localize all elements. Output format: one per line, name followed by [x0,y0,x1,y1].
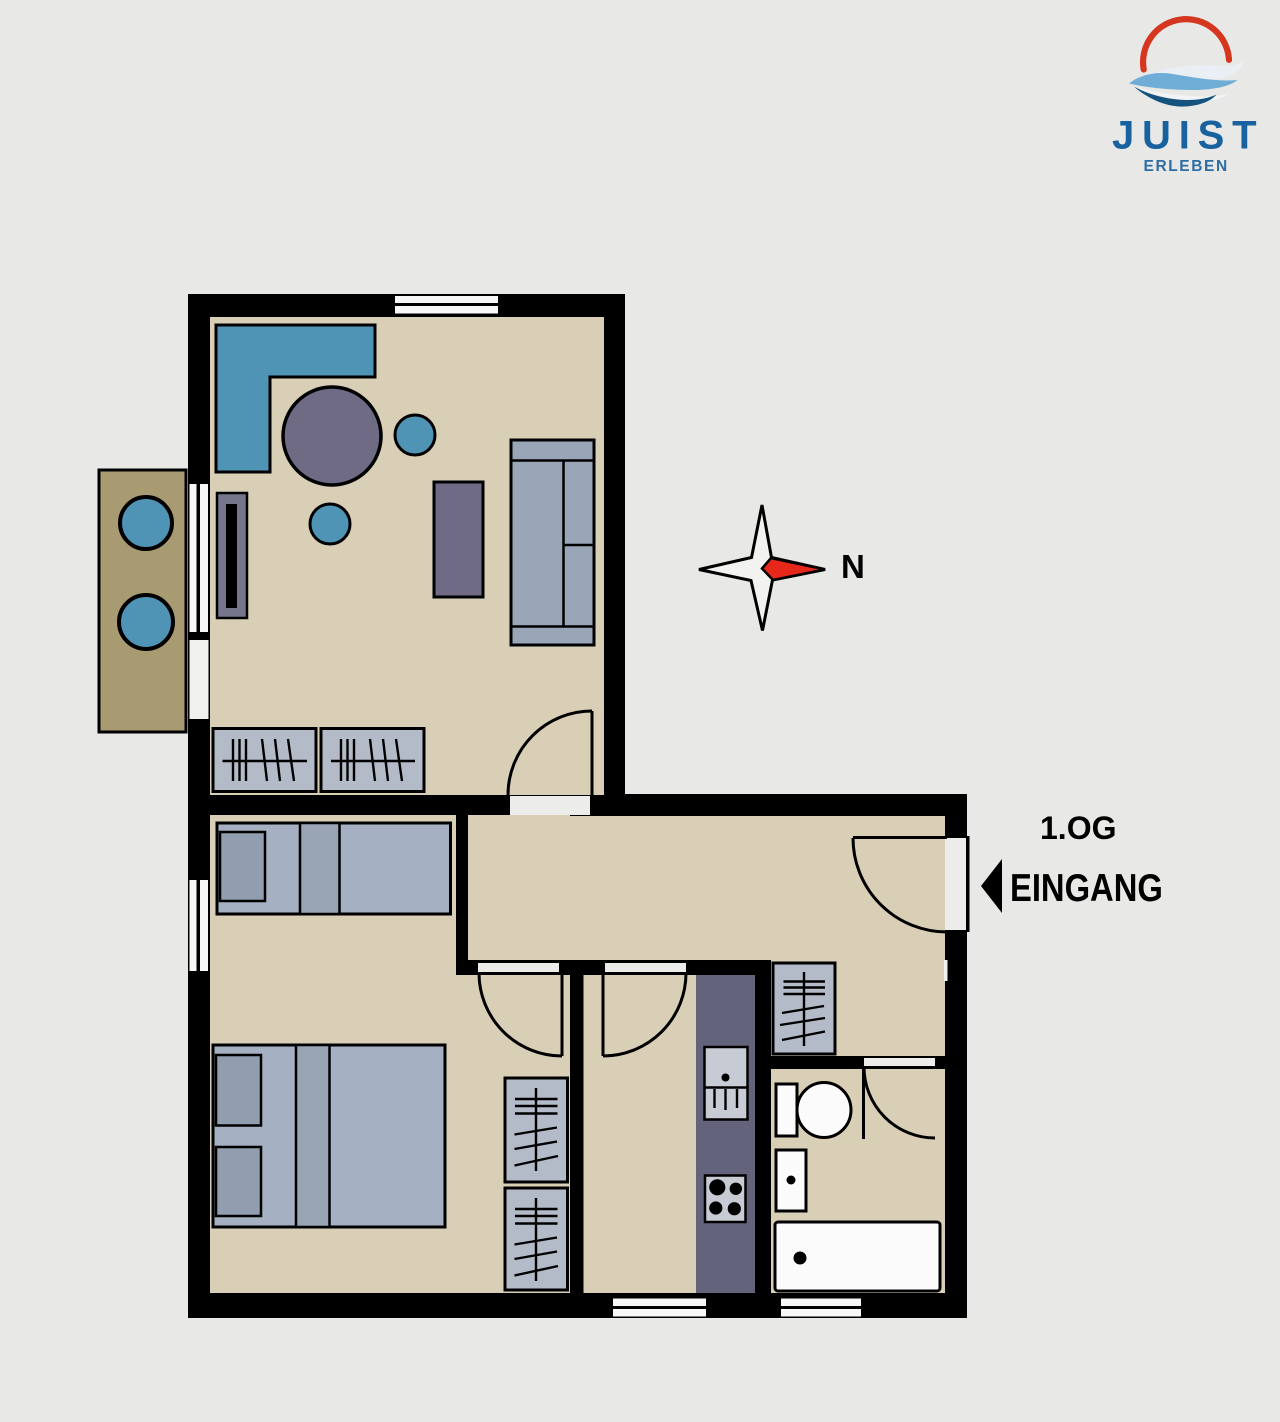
svg-text:N: N [841,548,865,585]
svg-text:JUIST: JUIST [1112,114,1264,158]
svg-text:ERLEBEN: ERLEBEN [1144,158,1229,175]
svg-text:EINGANG: EINGANG [1010,865,1163,909]
svg-text:1.OG: 1.OG [1040,810,1116,846]
